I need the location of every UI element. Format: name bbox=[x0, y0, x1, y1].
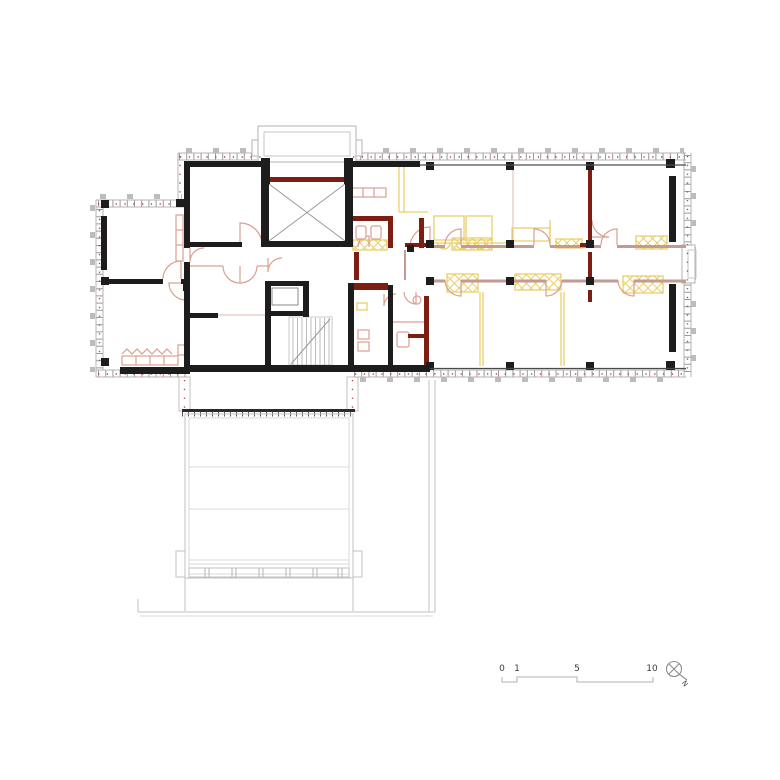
scale-label-10: 10 bbox=[646, 664, 658, 674]
scale-label-0: 0 bbox=[499, 664, 505, 674]
floor-plan-svg: 0 1 5 10 N bbox=[0, 0, 780, 780]
scale-label-1: 1 bbox=[514, 664, 520, 674]
floor-plan-page: 0 1 5 10 N bbox=[0, 0, 780, 780]
scale-label-5: 5 bbox=[574, 664, 580, 674]
paper-background bbox=[0, 0, 780, 780]
